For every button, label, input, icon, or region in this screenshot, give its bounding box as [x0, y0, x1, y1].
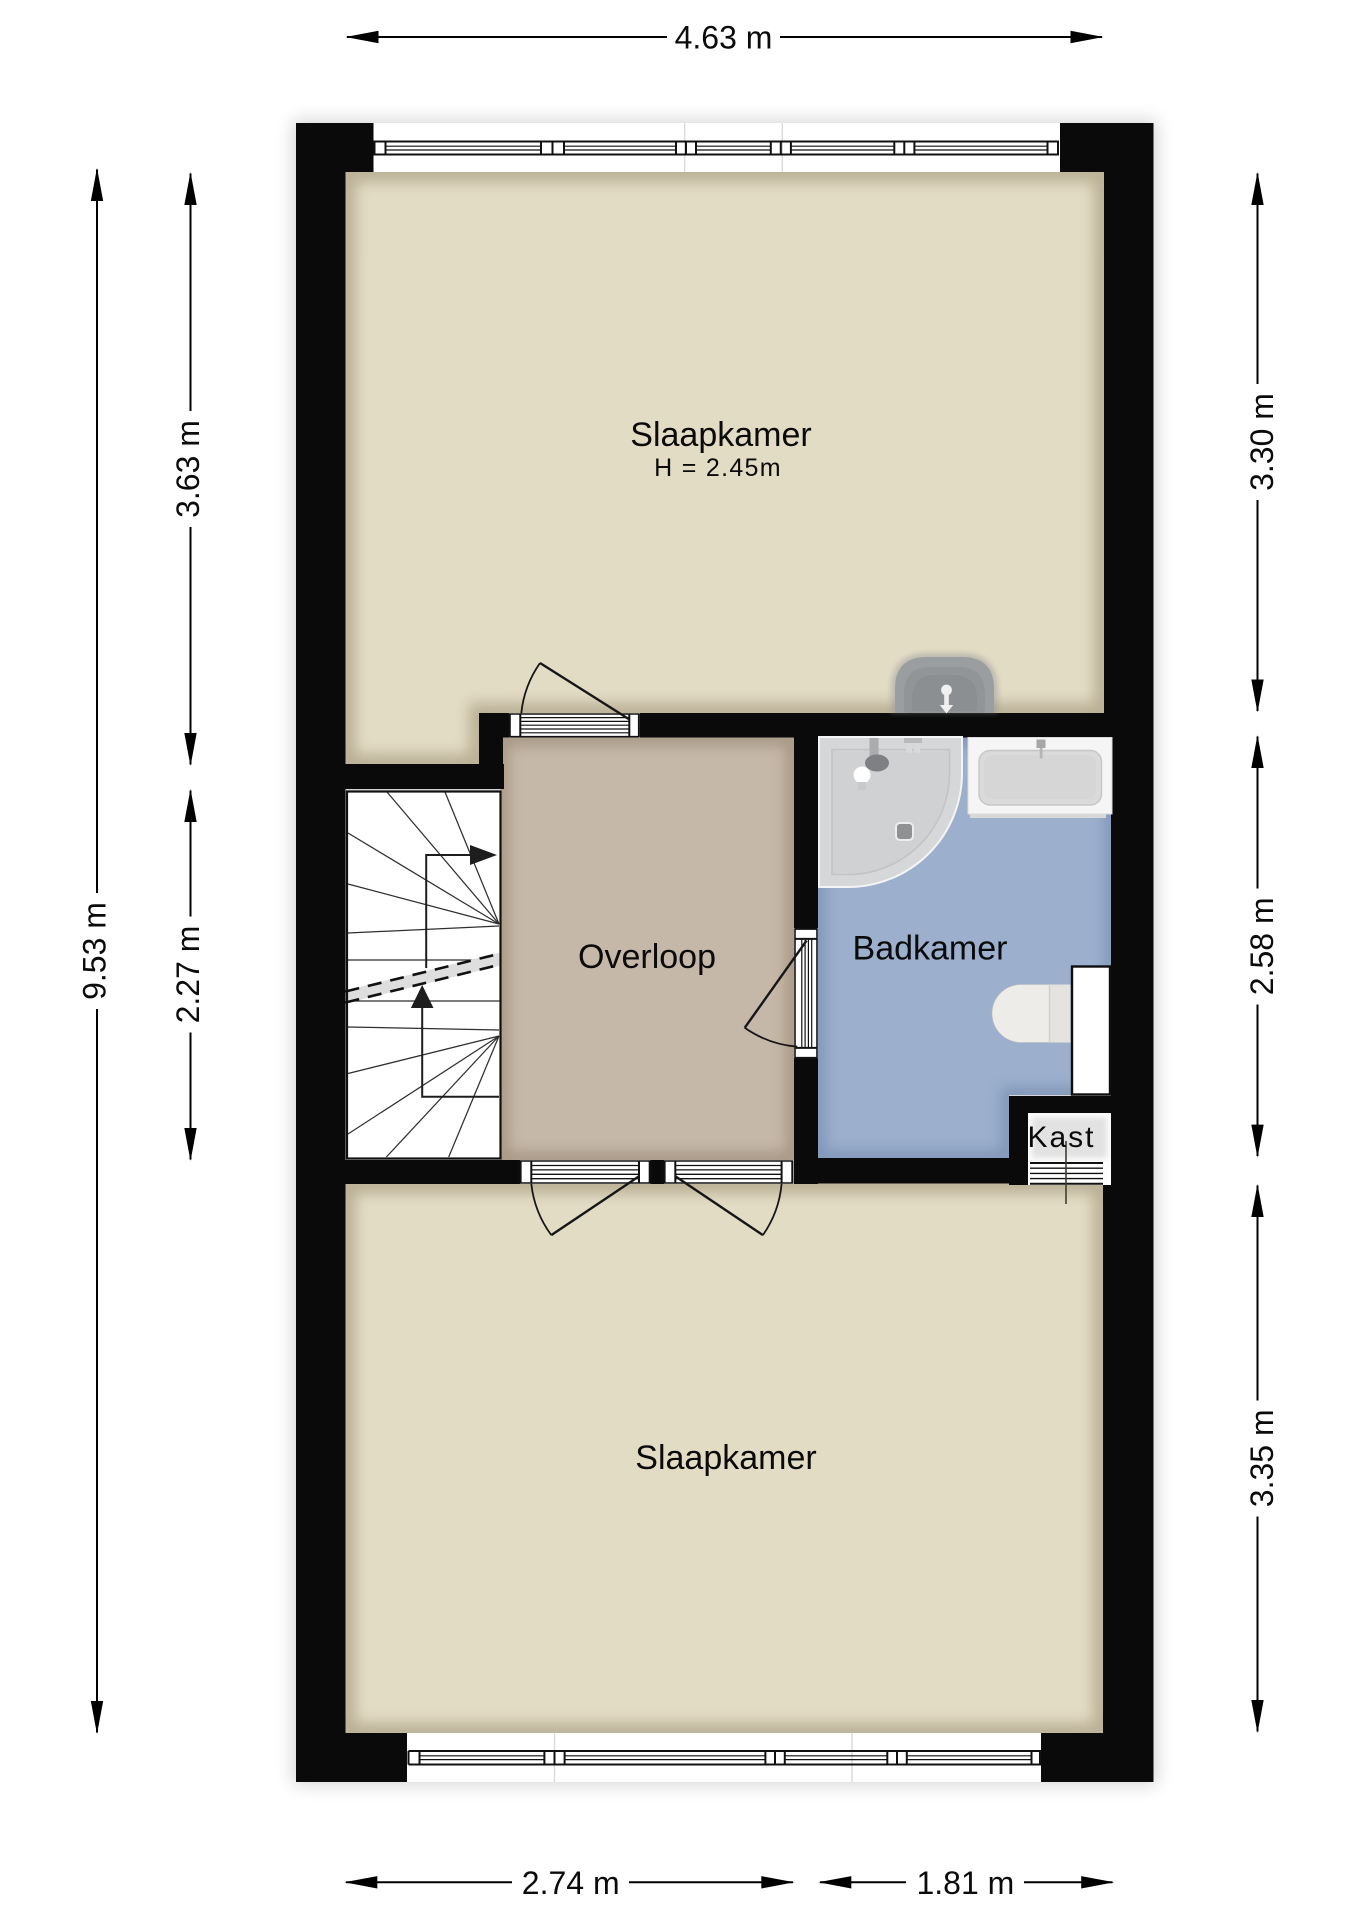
svg-text:2.27 m: 2.27 m [170, 926, 206, 1024]
svg-text:2.74 m: 2.74 m [522, 1865, 620, 1901]
svg-text:Overloop: Overloop [578, 938, 716, 976]
svg-text:H = 2.45m: H = 2.45m [654, 454, 782, 482]
svg-text:1.81 m: 1.81 m [916, 1865, 1014, 1901]
svg-text:Badkamer: Badkamer [853, 930, 1008, 968]
svg-text:4.63 m: 4.63 m [675, 20, 773, 56]
svg-text:3.30 m: 3.30 m [1244, 393, 1280, 491]
svg-text:9.53 m: 9.53 m [77, 902, 113, 1000]
svg-text:3.35 m: 3.35 m [1244, 1409, 1280, 1507]
svg-text:Slaapkamer: Slaapkamer [630, 416, 811, 454]
svg-text:3.63 m: 3.63 m [170, 420, 206, 518]
svg-text:Slaapkamer: Slaapkamer [635, 1439, 816, 1477]
svg-text:Kast: Kast [1027, 1121, 1095, 1154]
svg-text:2.58 m: 2.58 m [1244, 897, 1280, 995]
